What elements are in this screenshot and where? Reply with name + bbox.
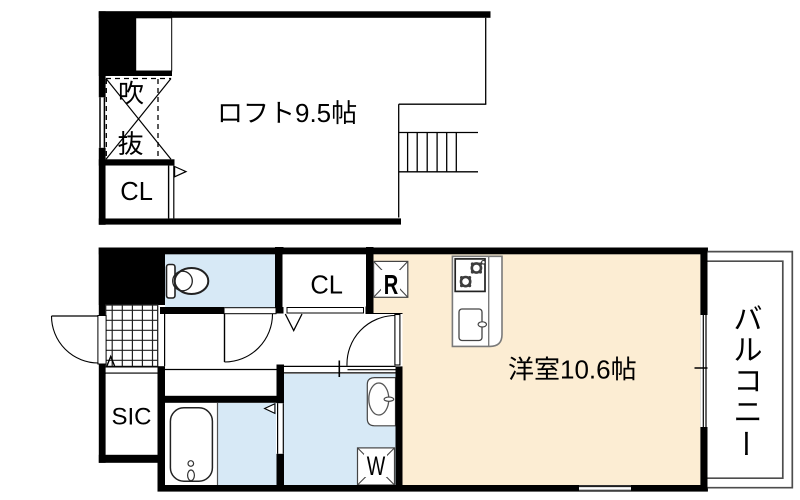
svg-text:SIC: SIC: [112, 404, 152, 431]
svg-text:9.5: 9.5: [295, 98, 331, 128]
svg-text:W: W: [367, 451, 386, 481]
svg-text:CL: CL: [310, 272, 343, 300]
svg-text:10.6: 10.6: [560, 354, 611, 384]
svg-text:CL: CL: [120, 178, 153, 206]
svg-text:R: R: [384, 269, 399, 300]
